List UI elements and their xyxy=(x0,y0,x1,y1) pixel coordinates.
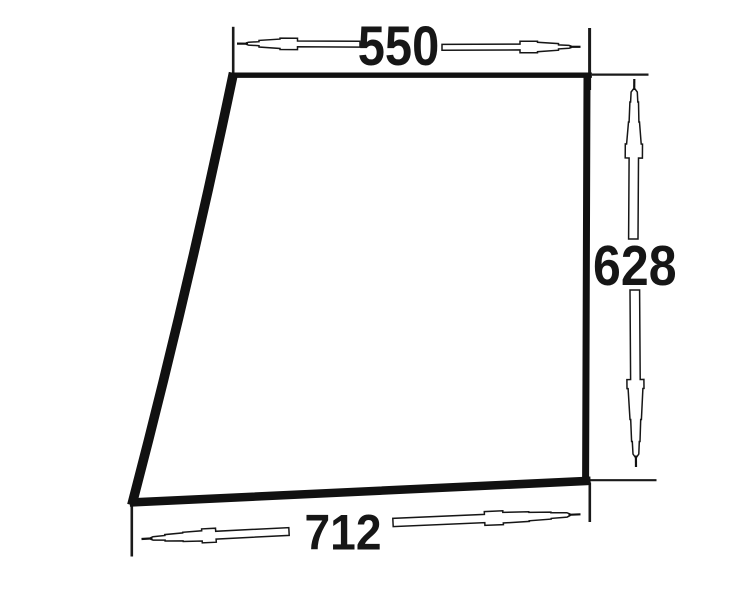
svg-text:712: 712 xyxy=(305,504,382,561)
svg-text:550: 550 xyxy=(358,15,440,77)
svg-text:628: 628 xyxy=(593,234,677,297)
